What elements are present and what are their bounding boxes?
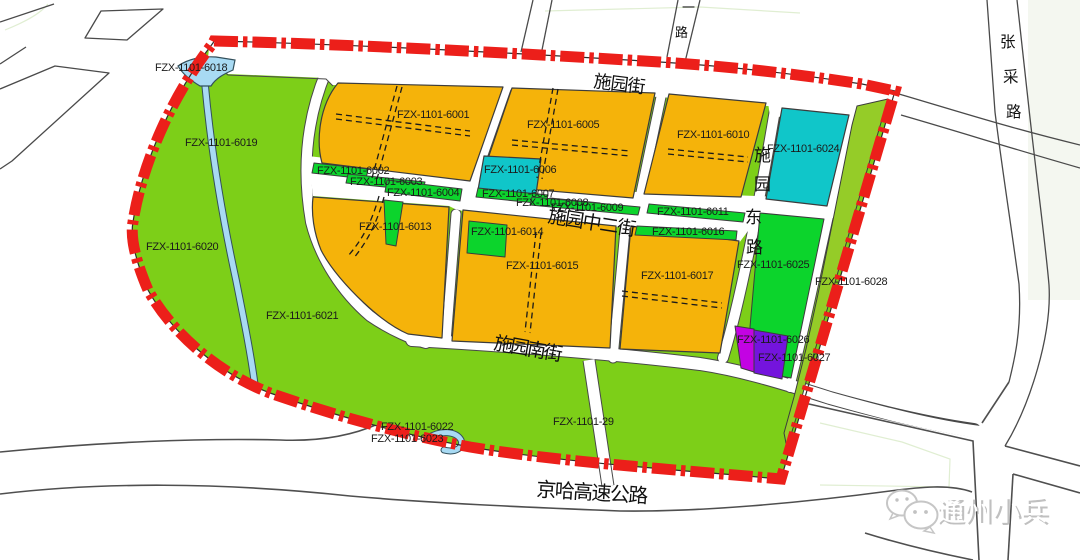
svg-text:FZX-1101-6019: FZX-1101-6019 — [185, 137, 258, 149]
svg-text:FZX-1101-6005: FZX-1101-6005 — [527, 119, 600, 131]
svg-text:张: 张 — [1000, 33, 1016, 51]
svg-text:FZX-1101-6028: FZX-1101-6028 — [815, 276, 888, 288]
svg-text:FZX-1101-6006: FZX-1101-6006 — [484, 164, 557, 176]
svg-text:FZX-1101-6010: FZX-1101-6010 — [677, 129, 750, 141]
svg-text:FZX-1101-6001: FZX-1101-6001 — [397, 109, 470, 121]
svg-text:一: 一 — [682, 0, 695, 15]
svg-text:FZX-1101-6024: FZX-1101-6024 — [767, 143, 840, 155]
svg-text:FZX-1101-6017: FZX-1101-6017 — [641, 270, 714, 282]
svg-text:FZX-1101-6004: FZX-1101-6004 — [387, 187, 460, 199]
svg-text:FZX-1101-6013: FZX-1101-6013 — [359, 221, 432, 233]
svg-text:FZX-1101-6023: FZX-1101-6023 — [371, 433, 444, 445]
svg-text:园: 园 — [754, 175, 771, 194]
svg-text:FZX-1101-6016: FZX-1101-6016 — [652, 226, 725, 238]
svg-text:FZX-1101-29: FZX-1101-29 — [553, 416, 614, 428]
svg-text:FZX-1101-6026: FZX-1101-6026 — [737, 334, 810, 346]
svg-text:路: 路 — [675, 25, 688, 40]
svg-text:FZX-1101-6025: FZX-1101-6025 — [737, 259, 810, 271]
svg-text:FZX-1101-6011: FZX-1101-6011 — [657, 206, 729, 218]
svg-text:FZX-1101-6014: FZX-1101-6014 — [471, 226, 544, 238]
svg-text:采: 采 — [1003, 68, 1019, 86]
svg-text:FZX-1101-6015: FZX-1101-6015 — [506, 260, 579, 272]
svg-text:FZX-1101-6027: FZX-1101-6027 — [758, 352, 831, 364]
svg-text:路: 路 — [1006, 103, 1022, 121]
svg-text:FZX-1101-6020: FZX-1101-6020 — [146, 241, 219, 253]
svg-text:施: 施 — [754, 146, 771, 165]
svg-text:路: 路 — [746, 238, 763, 257]
svg-text:FZX-1101-6021: FZX-1101-6021 — [266, 310, 339, 322]
svg-text:FZX-1101-6022: FZX-1101-6022 — [381, 421, 454, 433]
svg-text:FZX-1101-6018: FZX-1101-6018 — [155, 62, 228, 74]
svg-text:通州小兵: 通州小兵 — [936, 495, 1048, 526]
svg-text:东: 东 — [745, 208, 762, 227]
